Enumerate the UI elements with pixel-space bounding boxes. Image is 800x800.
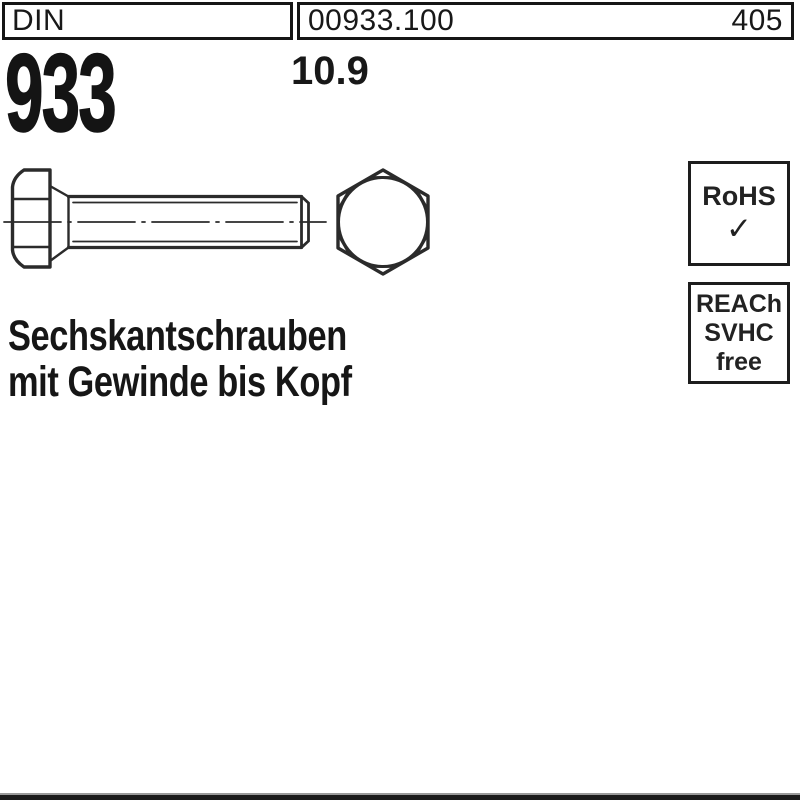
inscribed-circle bbox=[339, 178, 428, 267]
hexagon-outline bbox=[338, 170, 428, 274]
reach-line-3: free bbox=[716, 348, 762, 377]
rohs-check-icon: ✓ bbox=[726, 213, 752, 246]
reach-line-1: REACh bbox=[696, 290, 782, 319]
rohs-badge: RoHS ✓ bbox=[688, 161, 790, 266]
reach-badge: REACh SVHC free bbox=[688, 282, 790, 384]
bolt-side-view bbox=[4, 170, 326, 267]
title-line-2: mit Gewinde bis Kopf bbox=[8, 359, 352, 405]
rohs-label: RoHS bbox=[702, 181, 776, 212]
product-sheet-page: DIN 00933.100 405 933 10.9 bbox=[0, 0, 800, 800]
bolt-head-side bbox=[13, 170, 51, 267]
reach-line-2: SVHC bbox=[704, 319, 773, 348]
bottom-bar bbox=[0, 793, 800, 800]
title-line-1: Sechskantschrauben bbox=[8, 313, 352, 359]
bolt-head-facet-lines bbox=[13, 199, 51, 247]
bolt-front-view bbox=[338, 170, 428, 274]
bolt-underhead-cone bbox=[50, 186, 69, 261]
product-title: Sechskantschrauben mit Gewinde bis Kopf bbox=[8, 313, 352, 405]
